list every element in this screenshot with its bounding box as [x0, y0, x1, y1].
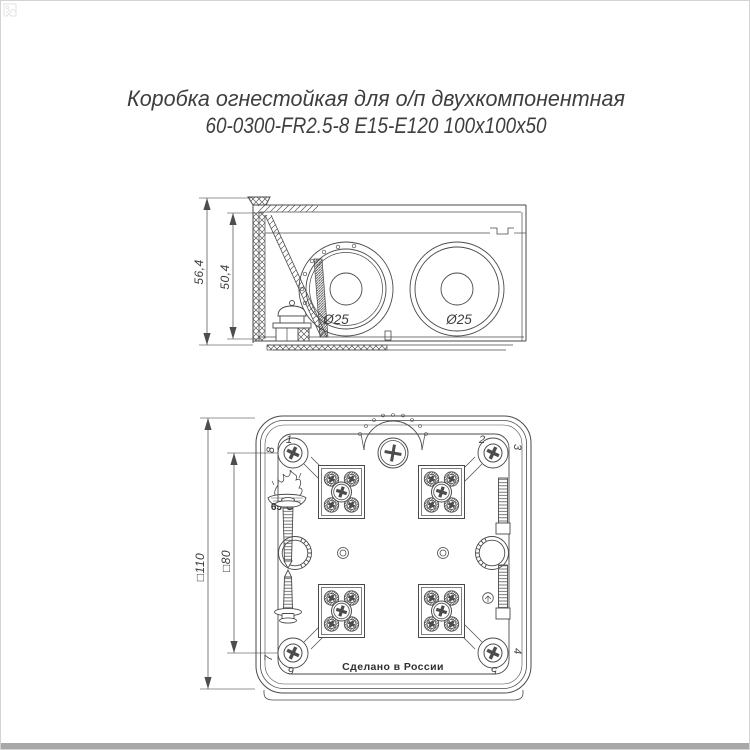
threaded-boss-bottom [496, 565, 510, 619]
drawing-page: Коробка огнестойкая для о/п двухкомпонен… [0, 0, 750, 750]
corner-number-2: 2 [478, 434, 485, 446]
mounting-plate [278, 414, 509, 675]
bottom-plan-view: 65°С [193, 414, 531, 701]
corner-number-7: 7 [263, 654, 275, 661]
page-bottom-bar [1, 743, 749, 749]
knockout-right-label: Ø25 [445, 312, 472, 327]
title-line-1: Коробка огнестойкая для о/п двухкомпонен… [127, 86, 625, 111]
cable-gland [273, 301, 311, 342]
lid-screw-dome [359, 414, 428, 469]
title-line-2: 60-0300-FR2.5-8 E15-E120 100x100x50 [206, 113, 548, 138]
material-mark-icon [483, 593, 494, 604]
corner-number-6: 6 [287, 664, 294, 676]
screw-pictogram-bottom [275, 570, 302, 623]
corner-number-4: 4 [511, 648, 523, 654]
side-section-view: Ø25 Ø25 56,4 50,4 [192, 197, 526, 350]
dim-inner-height-label: 50,4 [218, 264, 232, 289]
corner-number-1: 1 [286, 434, 292, 446]
center-holes [338, 548, 449, 559]
corner-number-5: 5 [490, 664, 497, 676]
dim-inner-square-label: □80 [219, 550, 233, 572]
corner-number-3: 3 [511, 444, 523, 451]
threaded-boss-top [496, 478, 510, 534]
dim-outer-square-label: □110 [193, 553, 207, 581]
dim-outer-height-label: 56,4 [192, 259, 206, 284]
drawing-title: Коробка огнестойкая для о/п двухкомпонен… [127, 86, 625, 138]
made-in-label: Сделано в России [342, 661, 444, 673]
corner-number-8: 8 [265, 446, 277, 453]
technical-drawing: Коробка огнестойкая для о/п двухкомпонен… [1, 1, 750, 750]
